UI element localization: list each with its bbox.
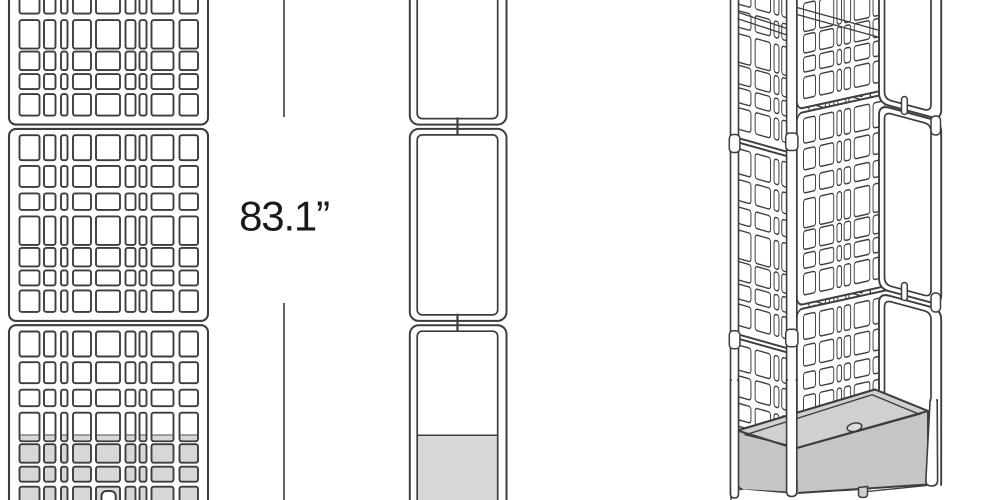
- svg-text:83.1”: 83.1”: [239, 193, 329, 240]
